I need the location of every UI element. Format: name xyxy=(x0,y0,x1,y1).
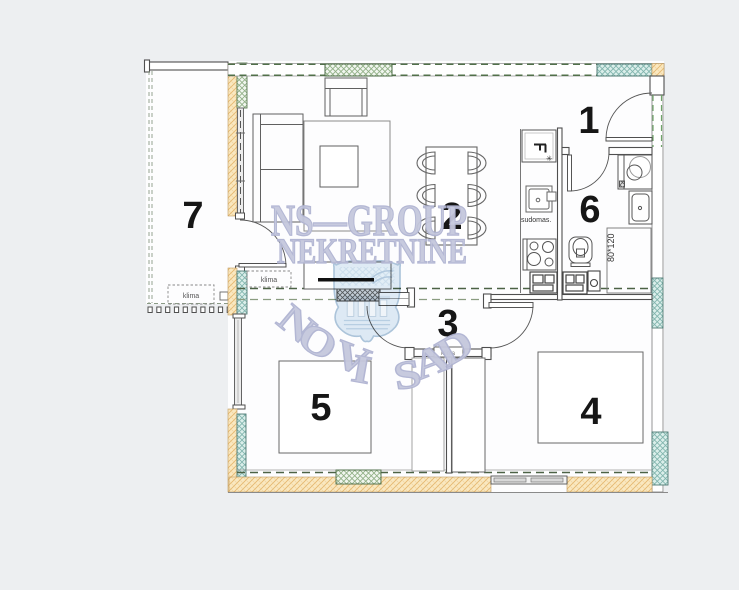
svg-text:✳: ✳ xyxy=(546,154,553,163)
svg-text:7: 7 xyxy=(182,195,203,237)
svg-text:klima: klima xyxy=(261,277,277,284)
svg-text:6: 6 xyxy=(579,189,600,231)
svg-text:sudomas.: sudomas. xyxy=(521,217,551,224)
svg-text:klima: klima xyxy=(183,293,199,300)
svg-text:4: 4 xyxy=(580,391,601,433)
svg-text:80*120: 80*120 xyxy=(606,233,616,262)
svg-text:5: 5 xyxy=(310,387,331,429)
svg-text:1: 1 xyxy=(578,100,599,142)
svg-text:NEKRETNINE: NEKRETNINE xyxy=(277,231,467,271)
